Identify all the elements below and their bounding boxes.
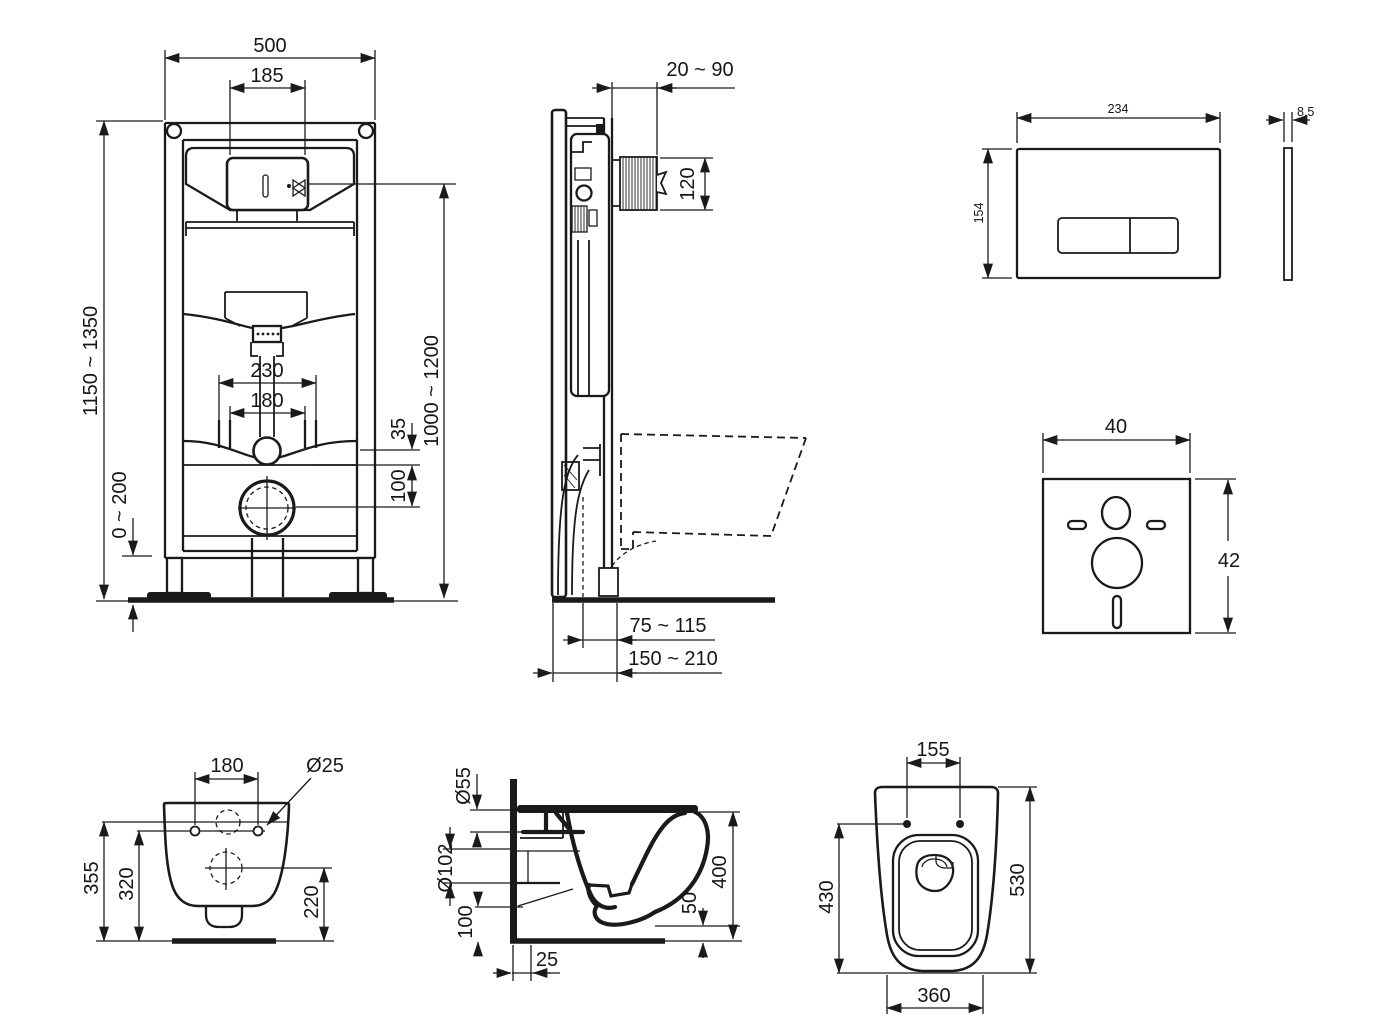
flush-bend	[558, 444, 656, 597]
dim-wall-offset: 20 ~ 90	[666, 59, 733, 81]
fixing-hole-right	[254, 827, 263, 836]
flush-pipe-outlet	[254, 438, 281, 465]
dim-pad-height: 42	[1218, 550, 1240, 572]
flush-plate-body	[1017, 149, 1220, 278]
cistern-side	[571, 134, 609, 396]
bowl-side-dimensions: Ø55 Ø102 100 25 50 400	[435, 767, 740, 981]
sound-pad-view: 40 42	[1043, 416, 1240, 633]
dim-hole-diameter: Ø25	[306, 755, 344, 777]
dim-drain-offset-near: 75 ~ 115	[630, 615, 707, 637]
dim-fixing-to-drain: 100	[388, 469, 410, 502]
pipe-stub	[657, 172, 666, 194]
inlet-connection	[517, 813, 583, 906]
dim-outlet-diameter: Ø102	[435, 844, 457, 893]
bowl-side-view: Ø55 Ø102 100 25 50 400	[435, 767, 742, 981]
flush-plate-view: 234 154 8,5	[972, 102, 1314, 280]
dim-frame-height: 1150 ~ 1350	[80, 306, 102, 416]
dim-seat-fixing-spacing: 155	[916, 739, 949, 761]
floor-extension-lines	[655, 926, 742, 941]
wall-line	[510, 779, 517, 943]
dim-bowl-height-drain: 220	[301, 885, 323, 918]
flush-plate-profile	[1284, 148, 1292, 280]
dim-frame-overall-width: 500	[253, 35, 286, 57]
bowl-dashed-outline	[621, 434, 806, 549]
seat-fixing-right	[956, 820, 964, 828]
dim-plate-width: 234	[1108, 102, 1129, 116]
seat-top-bar	[517, 805, 698, 813]
dim-bowl-length-inner: 430	[816, 880, 838, 913]
plate-thickness-dimension: 8,5	[1266, 105, 1314, 142]
dim-plate-thickness: 8,5	[1297, 105, 1314, 119]
dim-wall-gap: 25	[536, 949, 558, 971]
trap-weir	[589, 884, 632, 896]
bowl-cavity-left	[567, 813, 615, 908]
floor-drain-block	[599, 568, 618, 596]
dim-bowl-height-overall: 355	[81, 861, 103, 894]
dim-fixing-spacing: 180	[250, 390, 283, 412]
cistern	[186, 148, 354, 236]
dim-inlet-height: 1000 ~ 1200	[421, 335, 443, 447]
frame-bolt-hole-right	[359, 124, 373, 138]
dim-opening-width: 185	[250, 65, 283, 87]
dim-flush-offset: 35	[388, 418, 410, 440]
fixing-hole-left	[191, 827, 200, 836]
drain-socket	[184, 476, 356, 597]
bowl-top-view: 155 430 530 360	[816, 739, 1037, 1014]
dim-rim-clearance: 50	[679, 892, 701, 914]
dim-pad-width: 40	[1105, 416, 1127, 438]
bowl-back-view: 180 Ø25 355 320 220	[81, 755, 344, 941]
frame-front-view: 500 185 1150 ~ 1350 0 ~ 200 1000 ~ 1200 …	[80, 35, 458, 632]
dim-outlet-height: 100	[455, 905, 477, 938]
dim-bowl-fixing-spacing: 180	[210, 755, 243, 777]
dim-inlet-diameter: Ø55	[453, 767, 475, 805]
dim-bowl-width: 360	[917, 985, 950, 1007]
dim-bowl-height-fixings: 320	[116, 867, 138, 900]
dim-outer-fixing-spacing: 230	[250, 360, 283, 382]
frame-bolt-hole-left	[167, 124, 181, 138]
pad-outline	[1043, 479, 1190, 633]
rail-profile	[552, 110, 566, 597]
dim-bowl-depth: 400	[709, 855, 731, 888]
dim-drain-offset-far: 150 ~ 210	[628, 648, 718, 670]
technical-drawing-canvas: 500 185 1150 ~ 1350 0 ~ 200 1000 ~ 1200 …	[0, 0, 1400, 1034]
frame-side-view: 20 ~ 90 120 75 ~ 115 150 ~ 210	[533, 59, 806, 682]
dim-plate-height: 154	[972, 203, 986, 224]
drawing-svg: 500 185 1150 ~ 1350 0 ~ 200 1000 ~ 1200 …	[0, 0, 1400, 1034]
dim-foot-adjustment: 0 ~ 200	[109, 471, 131, 538]
dim-duct-height: 120	[677, 167, 699, 200]
bowl-outlet-bump	[206, 906, 242, 927]
wall-duct	[612, 157, 666, 210]
seat-fixing-left	[903, 820, 911, 828]
dim-bowl-length-overall: 530	[1007, 863, 1029, 896]
frame-feet	[96, 558, 458, 601]
bowl-cavity-right	[632, 813, 685, 884]
